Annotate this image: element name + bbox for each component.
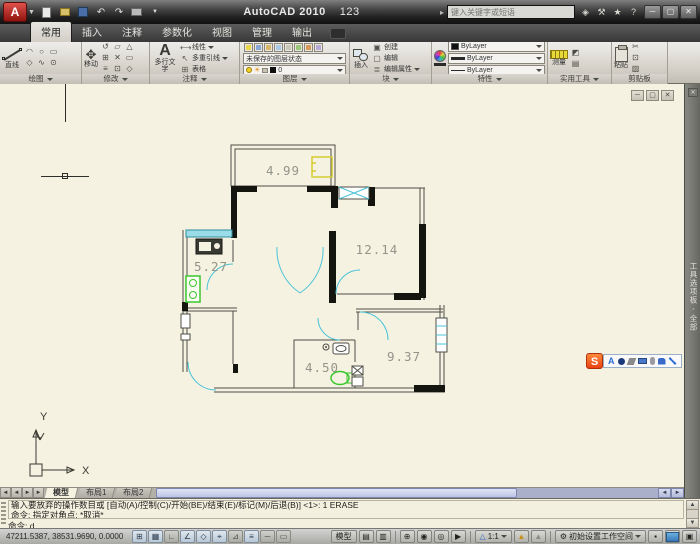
table-button[interactable]: ⊞ 表格 — [180, 64, 228, 74]
edit-attribute-button[interactable]: ≣ 编辑属性 — [372, 64, 420, 74]
create-block-icon: ▣ — [372, 43, 382, 52]
multileader-button[interactable]: ↖ 多重引线 — [180, 53, 228, 63]
command-history-line1: 输入要放弃的操作数目或 [自动(A)/控制(C)/开始(BE)/结束(E)/标记… — [11, 500, 359, 510]
ortho-toggle[interactable]: ∟ — [164, 530, 179, 543]
command-scrollbar[interactable]: ▲ ▼ — [686, 500, 699, 528]
dropdown-arrow-icon — [536, 45, 542, 48]
quick-access-toolbar: ↶ ↷ ▼ — [39, 5, 163, 20]
match-properties-icon[interactable]: ▨ — [630, 64, 641, 74]
ime-mode-icon[interactable]: A — [608, 356, 615, 366]
close-button[interactable]: ✕ — [680, 5, 697, 19]
move-button[interactable]: ✥ 移动 — [84, 48, 98, 68]
application-menu-button[interactable]: A — [3, 2, 27, 22]
ribbon-panels: 直线 ◠ ○ ▭ ◇ ∿ ⊙ 绘图 ✥ 移动 ↺ — [0, 42, 700, 84]
panel-expand-arrow-icon — [201, 78, 207, 81]
tool-palette-tab[interactable]: 工具选项板 - 全部 — [688, 262, 699, 331]
otrack-toggle[interactable]: ⌖ — [212, 530, 227, 543]
room-label-bathroom: 4.50 — [305, 360, 339, 375]
color-swatch — [451, 43, 459, 50]
insert-block-icon — [352, 48, 370, 62]
layer-isolate-icon[interactable] — [264, 43, 273, 52]
kitchen-window — [186, 230, 232, 237]
grid-toggle[interactable]: ▦ — [148, 530, 163, 543]
tab-output[interactable]: 输出 — [282, 22, 322, 42]
scale-icon[interactable]: ▭ — [124, 53, 135, 63]
bedroom-bottom-window — [436, 318, 447, 352]
search-arrow-icon[interactable]: ▸ — [440, 8, 444, 17]
minimize-button[interactable]: ─ — [644, 5, 661, 19]
panel-layers: 未保存的图层状态 ☀ 0 图层 — [240, 42, 350, 84]
panel-layers-label[interactable]: 图层 — [240, 74, 349, 84]
bedroom-right-window — [339, 187, 369, 199]
horizontal-scrollbar-thumb[interactable] — [156, 488, 518, 498]
layer-lock-icon[interactable] — [284, 43, 293, 52]
drawing-restore-button[interactable]: ▢ — [646, 90, 659, 101]
table-icon: ⊞ — [180, 65, 190, 74]
layer-match-icon[interactable] — [294, 43, 303, 52]
color-wheel-icon[interactable] — [434, 50, 446, 62]
annotation-visibility-button[interactable]: ▲ — [514, 530, 529, 543]
room-label-bedroom-right: 12.14 — [356, 242, 399, 257]
sogou-logo-icon[interactable]: S — [586, 353, 603, 369]
array-icon[interactable]: ≡ — [100, 64, 111, 74]
linear-dim-icon: ⟷ — [180, 43, 190, 52]
ucs-x-label: X — [82, 465, 90, 477]
title-bar: A ▼ ↶ ↷ ▼ AutoCAD 2010123 ▸ ◈ ⚒ ★ ? ─ ▢ … — [0, 0, 700, 24]
pan-button[interactable]: ⊕ — [400, 530, 415, 543]
living-double-door-left — [277, 247, 300, 293]
mtext-icon: A — [159, 43, 171, 59]
help-icon[interactable]: ? — [627, 6, 640, 19]
quick-select-icon[interactable]: ◩ — [570, 48, 581, 58]
fillet-icon[interactable]: ◇ — [124, 64, 135, 74]
lineweight-sample — [451, 57, 465, 60]
ime-toolbar[interactable]: S A — [586, 353, 682, 369]
model-space-button[interactable]: 模型 — [331, 530, 357, 543]
dropdown-arrow-icon — [501, 535, 507, 538]
toolbar-lock-button[interactable]: ▪ — [648, 530, 663, 543]
app-title-text: AutoCAD 2010 — [243, 6, 325, 18]
layer-freeze-icon[interactable] — [274, 43, 283, 52]
dropdown-arrow-icon — [635, 535, 641, 538]
redo-button[interactable]: ↷ — [111, 5, 127, 20]
gear-icon: ⚙ — [560, 531, 567, 542]
favorites-icon[interactable]: ★ — [611, 6, 624, 19]
panel-expand-arrow-icon — [301, 78, 307, 81]
edit-attribute-icon: ≣ — [372, 65, 382, 74]
panel-clipboard: 粘贴 ✂ ⊡ ▨ 剪贴板 — [612, 42, 668, 84]
room-label-kitchen: 5.27 — [194, 259, 228, 274]
snap-toggle[interactable]: ⊞ — [132, 530, 147, 543]
show-motion-button[interactable]: ▶ — [451, 530, 466, 543]
subscription-icon[interactable]: ◈ — [579, 6, 592, 19]
horizontal-scrollbar[interactable] — [156, 488, 658, 498]
bathroom-door — [318, 318, 340, 340]
layer-dropdown[interactable]: ☀ 0 — [243, 65, 346, 74]
prev-tab-button[interactable]: ◄ — [11, 488, 22, 498]
open-button[interactable] — [57, 5, 73, 20]
measure-button[interactable]: 测量 — [550, 50, 568, 66]
tab-layout2[interactable]: 布局2 — [115, 488, 153, 498]
balcony-fixture-yellow — [312, 157, 332, 177]
insert-block-button[interactable]: 插入 — [352, 48, 370, 69]
layer-state-icon[interactable] — [314, 43, 323, 52]
command-history: 输入要放弃的操作数目或 [自动(A)/控制(C)/开始(BE)/结束(E)/标记… — [8, 500, 684, 519]
application-status-button[interactable] — [665, 530, 680, 543]
dropdown-arrow-icon — [208, 46, 214, 49]
tab-layout1[interactable]: 布局1 — [78, 488, 116, 498]
ime-wrench-icon[interactable] — [669, 357, 677, 365]
bathroom-sink — [323, 343, 349, 354]
electrical-boxes — [352, 366, 363, 386]
scroll-right-button[interactable]: ► — [671, 488, 684, 498]
ucs-labels: Y X — [40, 411, 90, 477]
edit-block-icon: ▢ — [372, 54, 382, 63]
communication-center-icon[interactable]: ⚒ — [595, 6, 608, 19]
unlock-icon — [262, 68, 268, 73]
panel-expand-arrow-icon — [393, 78, 399, 81]
multileader-icon: ↖ — [180, 54, 190, 63]
quick-calc-icon[interactable]: ▤ — [570, 59, 581, 69]
mtext-label: 多行文字 — [152, 59, 178, 73]
hall-cabinet — [181, 314, 190, 328]
dropdown-arrow-icon — [222, 57, 228, 60]
mirror-icon[interactable]: △ — [124, 42, 135, 52]
rectangle-icon[interactable]: ▭ — [48, 47, 59, 57]
panel-draw: 直线 ◠ ○ ▭ ◇ ∿ ⊙ 绘图 — [0, 42, 82, 84]
drawing-minimize-button[interactable]: ─ — [631, 90, 644, 101]
coordinate-display[interactable]: 47211.5387, 38531.9690, 0.0000 — [0, 532, 132, 541]
tab-home[interactable]: 常用 — [30, 21, 72, 42]
dropdown-arrow-icon — [337, 57, 343, 60]
annotation-auto-button[interactable]: ▲ — [531, 530, 546, 543]
crosshair-vertical — [65, 84, 66, 122]
document-title-text: 123 — [340, 6, 360, 18]
paste-clipboard-icon — [615, 47, 628, 62]
plot-button[interactable] — [129, 5, 145, 20]
layer-tools-row — [243, 43, 346, 52]
tab-parametric[interactable]: 参数化 — [152, 22, 202, 42]
panel-block-label[interactable]: 块 — [350, 74, 431, 84]
layer-color-swatch — [270, 67, 276, 73]
offset-icon[interactable]: ⊡ — [112, 64, 123, 74]
room-labels: 4.99 12.14 5.27 4.50 9.37 — [194, 163, 421, 375]
layer-prev-icon[interactable] — [304, 43, 313, 52]
dropdown-arrow-icon — [414, 68, 420, 71]
ucs-y-label: Y — [40, 411, 48, 423]
panel-expand-arrow-icon — [496, 78, 502, 81]
ribbon-minimize-icon[interactable] — [330, 28, 346, 39]
zoom-button[interactable]: ◉ — [417, 530, 432, 543]
maximize-button[interactable]: ▢ — [662, 5, 679, 19]
draw-tools-grid: ◠ ○ ▭ ◇ ∿ ⊙ — [24, 47, 60, 69]
command-history-line2: 命令: 指定对角点: *取消* — [11, 510, 104, 520]
undo-button[interactable]: ↶ — [93, 5, 109, 20]
room-label-balcony: 4.99 — [266, 163, 300, 178]
move-label: 移动 — [84, 61, 98, 68]
ime-moon-icon[interactable] — [618, 358, 625, 365]
scroll-up-icon[interactable]: ▲ — [687, 501, 698, 510]
crosshair-pickbox — [62, 173, 68, 179]
kitchen-stove — [186, 276, 200, 302]
save-button[interactable] — [75, 5, 91, 20]
measure-ruler-icon — [550, 50, 568, 59]
line-icon — [2, 48, 22, 62]
layer-off-icon[interactable] — [254, 43, 263, 52]
panel-annotation-label[interactable]: 注释 — [150, 74, 239, 84]
ime-mic-icon[interactable] — [650, 357, 655, 365]
stretch-icon[interactable]: ⊞ — [100, 53, 111, 63]
circle-icon[interactable]: ○ — [36, 47, 47, 57]
window-title: AutoCAD 2010123 — [163, 6, 440, 18]
search-input[interactable] — [447, 5, 575, 19]
scale-person-icon: △ — [480, 531, 486, 542]
polygon-icon[interactable]: ◇ — [24, 58, 35, 68]
spline-icon[interactable]: ∿ — [36, 58, 47, 68]
ellipse-icon[interactable]: ⊙ — [48, 58, 59, 68]
layout-tab-bar: ◄ ◄ ► ► 模型 布局1 布局2 ◄ ► — [0, 487, 684, 498]
status-toggles: ⊞ ▦ ∟ ∠ ◇ ⌖ ⊿ ≡ ─ ▭ — [132, 530, 291, 543]
layout-nav-buttons: ◄ ◄ ► ► — [0, 488, 44, 498]
next-tab-button[interactable]: ► — [22, 488, 33, 498]
workspace-switcher[interactable]: ⚙ 初始设置工作空间 — [555, 530, 646, 543]
layer-name: 0 — [278, 67, 282, 74]
paste-label: 粘贴 — [614, 62, 628, 69]
dropdown-arrow-icon — [536, 57, 542, 60]
edit-block-button[interactable]: ▢ 编辑 — [372, 53, 420, 63]
panel-annotation: A 多行文字 ⟷ 线性 ↖ 多重引线 ⊞ 表格 — [150, 42, 240, 84]
dyn-toggle[interactable]: ≡ — [244, 530, 259, 543]
annotation-scale-button[interactable]: △ 1:1 — [475, 530, 512, 543]
dropdown-arrow-icon — [337, 69, 343, 72]
status-right-tools: 模型 ▤ ▥ ⊕ ◉ ◎ ▶ △ 1:1 ▲ ▲ ⚙ 初始设置工作空间 ▪ — [331, 530, 700, 543]
layer-properties-icon[interactable] — [244, 43, 253, 52]
bulb-icon — [246, 67, 252, 73]
erase-icon[interactable]: ✕ — [112, 53, 123, 63]
floor-plan: 4.99 12.14 5.27 4.50 9.37 Y X — [0, 84, 684, 487]
status-bar: 47211.5387, 38531.9690, 0.0000 ⊞ ▦ ∟ ∠ ◇… — [0, 528, 700, 544]
cut-icon[interactable]: ✂ — [630, 42, 641, 52]
scroll-left-button[interactable]: ◄ — [658, 488, 671, 498]
infocenter-icons: ◈ ⚒ ★ ? — [579, 6, 640, 19]
mtext-button[interactable]: A 多行文字 — [152, 43, 178, 73]
panel-expand-arrow-icon — [47, 78, 53, 81]
linear-dimension-button[interactable]: ⟷ 线性 — [180, 42, 228, 52]
command-line-window[interactable]: 输入要放弃的操作数目或 [自动(A)/控制(C)/开始(BE)/结束(E)/标记… — [0, 498, 700, 528]
ime-keyboard-icon[interactable] — [638, 358, 647, 364]
layer-state-dropdown[interactable]: 未保存的图层状态 — [243, 53, 346, 64]
last-tab-button[interactable]: ► — [33, 488, 44, 498]
drawing-window-controls: ─ ▢ ✕ — [631, 90, 674, 101]
panel-expand-arrow-icon — [122, 78, 128, 81]
panel-block: 插入 ▣ 创建 ▢ 编辑 ≣ 编辑属性 块 — [350, 42, 432, 84]
polar-toggle[interactable]: ∠ — [180, 530, 195, 543]
tab-manage[interactable]: 管理 — [242, 22, 282, 42]
lineweight-dropdown[interactable]: ByLayer — [448, 53, 545, 64]
panel-draw-label[interactable]: 绘图 — [0, 74, 81, 84]
tab-view[interactable]: 视图 — [202, 22, 242, 42]
quickproperties-toggle[interactable]: ▭ — [276, 530, 291, 543]
dropdown-arrow-icon — [536, 69, 542, 72]
bedroom-bottom-door — [360, 312, 388, 340]
tab-model[interactable]: 模型 — [45, 488, 78, 498]
tab-insert[interactable]: 插入 — [72, 22, 112, 42]
command-window-grip[interactable] — [1, 502, 6, 526]
line-button[interactable]: 直线 — [2, 48, 22, 69]
ucs-icon — [30, 430, 74, 476]
scroll-down-icon[interactable]: ▼ — [687, 518, 698, 527]
screen-icon — [666, 532, 679, 542]
quickview-layouts-button[interactable]: ▤ — [359, 530, 374, 543]
measure-label: 测量 — [552, 59, 566, 66]
window-controls: ─ ▢ ✕ — [644, 5, 697, 19]
panel-modify: ✥ 移动 ↺ ▱ △ ⊞ ✕ ▭ ≡ ⊡ ◇ 修改 — [82, 42, 150, 84]
living-double-door-right — [300, 247, 323, 293]
drawing-canvas[interactable]: 4.99 12.14 5.27 4.50 9.37 Y X — [0, 84, 684, 487]
autocad-window: A ▼ ↶ ↷ ▼ AutoCAD 2010123 ▸ ◈ ⚒ ★ ? ─ ▢ … — [0, 0, 700, 544]
application-menu-arrow-icon[interactable]: ▼ — [28, 9, 35, 16]
rotate-icon[interactable]: ↺ — [100, 42, 111, 52]
kitchen-sink — [196, 239, 222, 254]
infocenter: ▸ — [440, 5, 575, 19]
osnap-toggle[interactable]: ◇ — [196, 530, 211, 543]
ribbon-tab-bar: 常用 插入 注释 参数化 视图 管理 输出 — [0, 24, 700, 42]
ime-skin-icon[interactable] — [658, 358, 666, 365]
tool-palette-dock[interactable]: ✕ 工具选项板 - 全部 — [684, 84, 700, 498]
paste-button[interactable]: 粘贴 — [614, 47, 628, 69]
quickview-drawings-button[interactable]: ▥ — [376, 530, 391, 543]
steering-wheel-button[interactable]: ◎ — [434, 530, 449, 543]
panel-utilities-label[interactable]: 实用工具 — [548, 74, 611, 84]
ducs-toggle[interactable]: ⊿ — [228, 530, 243, 543]
panel-properties: ByLayer ByLayer ByLayer 特性 — [432, 42, 548, 84]
lineweight-icon — [434, 63, 446, 66]
color-dropdown[interactable]: ByLayer — [448, 42, 545, 52]
room-label-bedroom-bottom: 9.37 — [387, 349, 421, 364]
insert-label: 插入 — [354, 62, 368, 69]
linetype-sample — [451, 70, 465, 71]
tab-annotate[interactable]: 注释 — [112, 22, 152, 42]
move-icon: ✥ — [86, 48, 97, 61]
drawing-close-button[interactable]: ✕ — [661, 90, 674, 101]
panel-modify-label[interactable]: 修改 — [82, 74, 149, 84]
copy-clip-icon[interactable]: ⊡ — [630, 53, 641, 63]
panel-properties-label[interactable]: 特性 — [432, 74, 547, 84]
create-block-button[interactable]: ▣ 创建 — [372, 42, 420, 52]
linetype-dropdown[interactable]: ByLayer — [448, 65, 545, 75]
first-tab-button[interactable]: ◄ — [0, 488, 11, 498]
copy-icon[interactable]: ▱ — [112, 42, 123, 52]
qnew-button[interactable] — [39, 5, 55, 20]
arc-icon[interactable]: ◠ — [24, 47, 35, 57]
clean-screen-button[interactable]: ▣ — [682, 530, 697, 543]
qat-customize-arrow-icon[interactable]: ▼ — [147, 5, 163, 20]
lineweight-toggle[interactable]: ─ — [260, 530, 275, 543]
line-label: 直线 — [5, 62, 19, 69]
panel-expand-arrow-icon — [593, 78, 599, 81]
modify-tools-grid: ↺ ▱ △ ⊞ ✕ ▭ ≡ ⊡ ◇ — [100, 42, 136, 74]
ime-pen-icon[interactable] — [626, 358, 636, 365]
entry-door — [188, 362, 216, 390]
panel-utilities: 测量 ◩ ▤ 实用工具 — [548, 42, 612, 84]
sun-icon: ☀ — [254, 66, 260, 74]
palette-close-icon[interactable]: ✕ — [688, 88, 698, 97]
panel-clipboard-label[interactable]: 剪贴板 — [612, 74, 667, 84]
bedroom-right-door — [336, 270, 360, 294]
hall-cabinet-small — [181, 334, 190, 340]
